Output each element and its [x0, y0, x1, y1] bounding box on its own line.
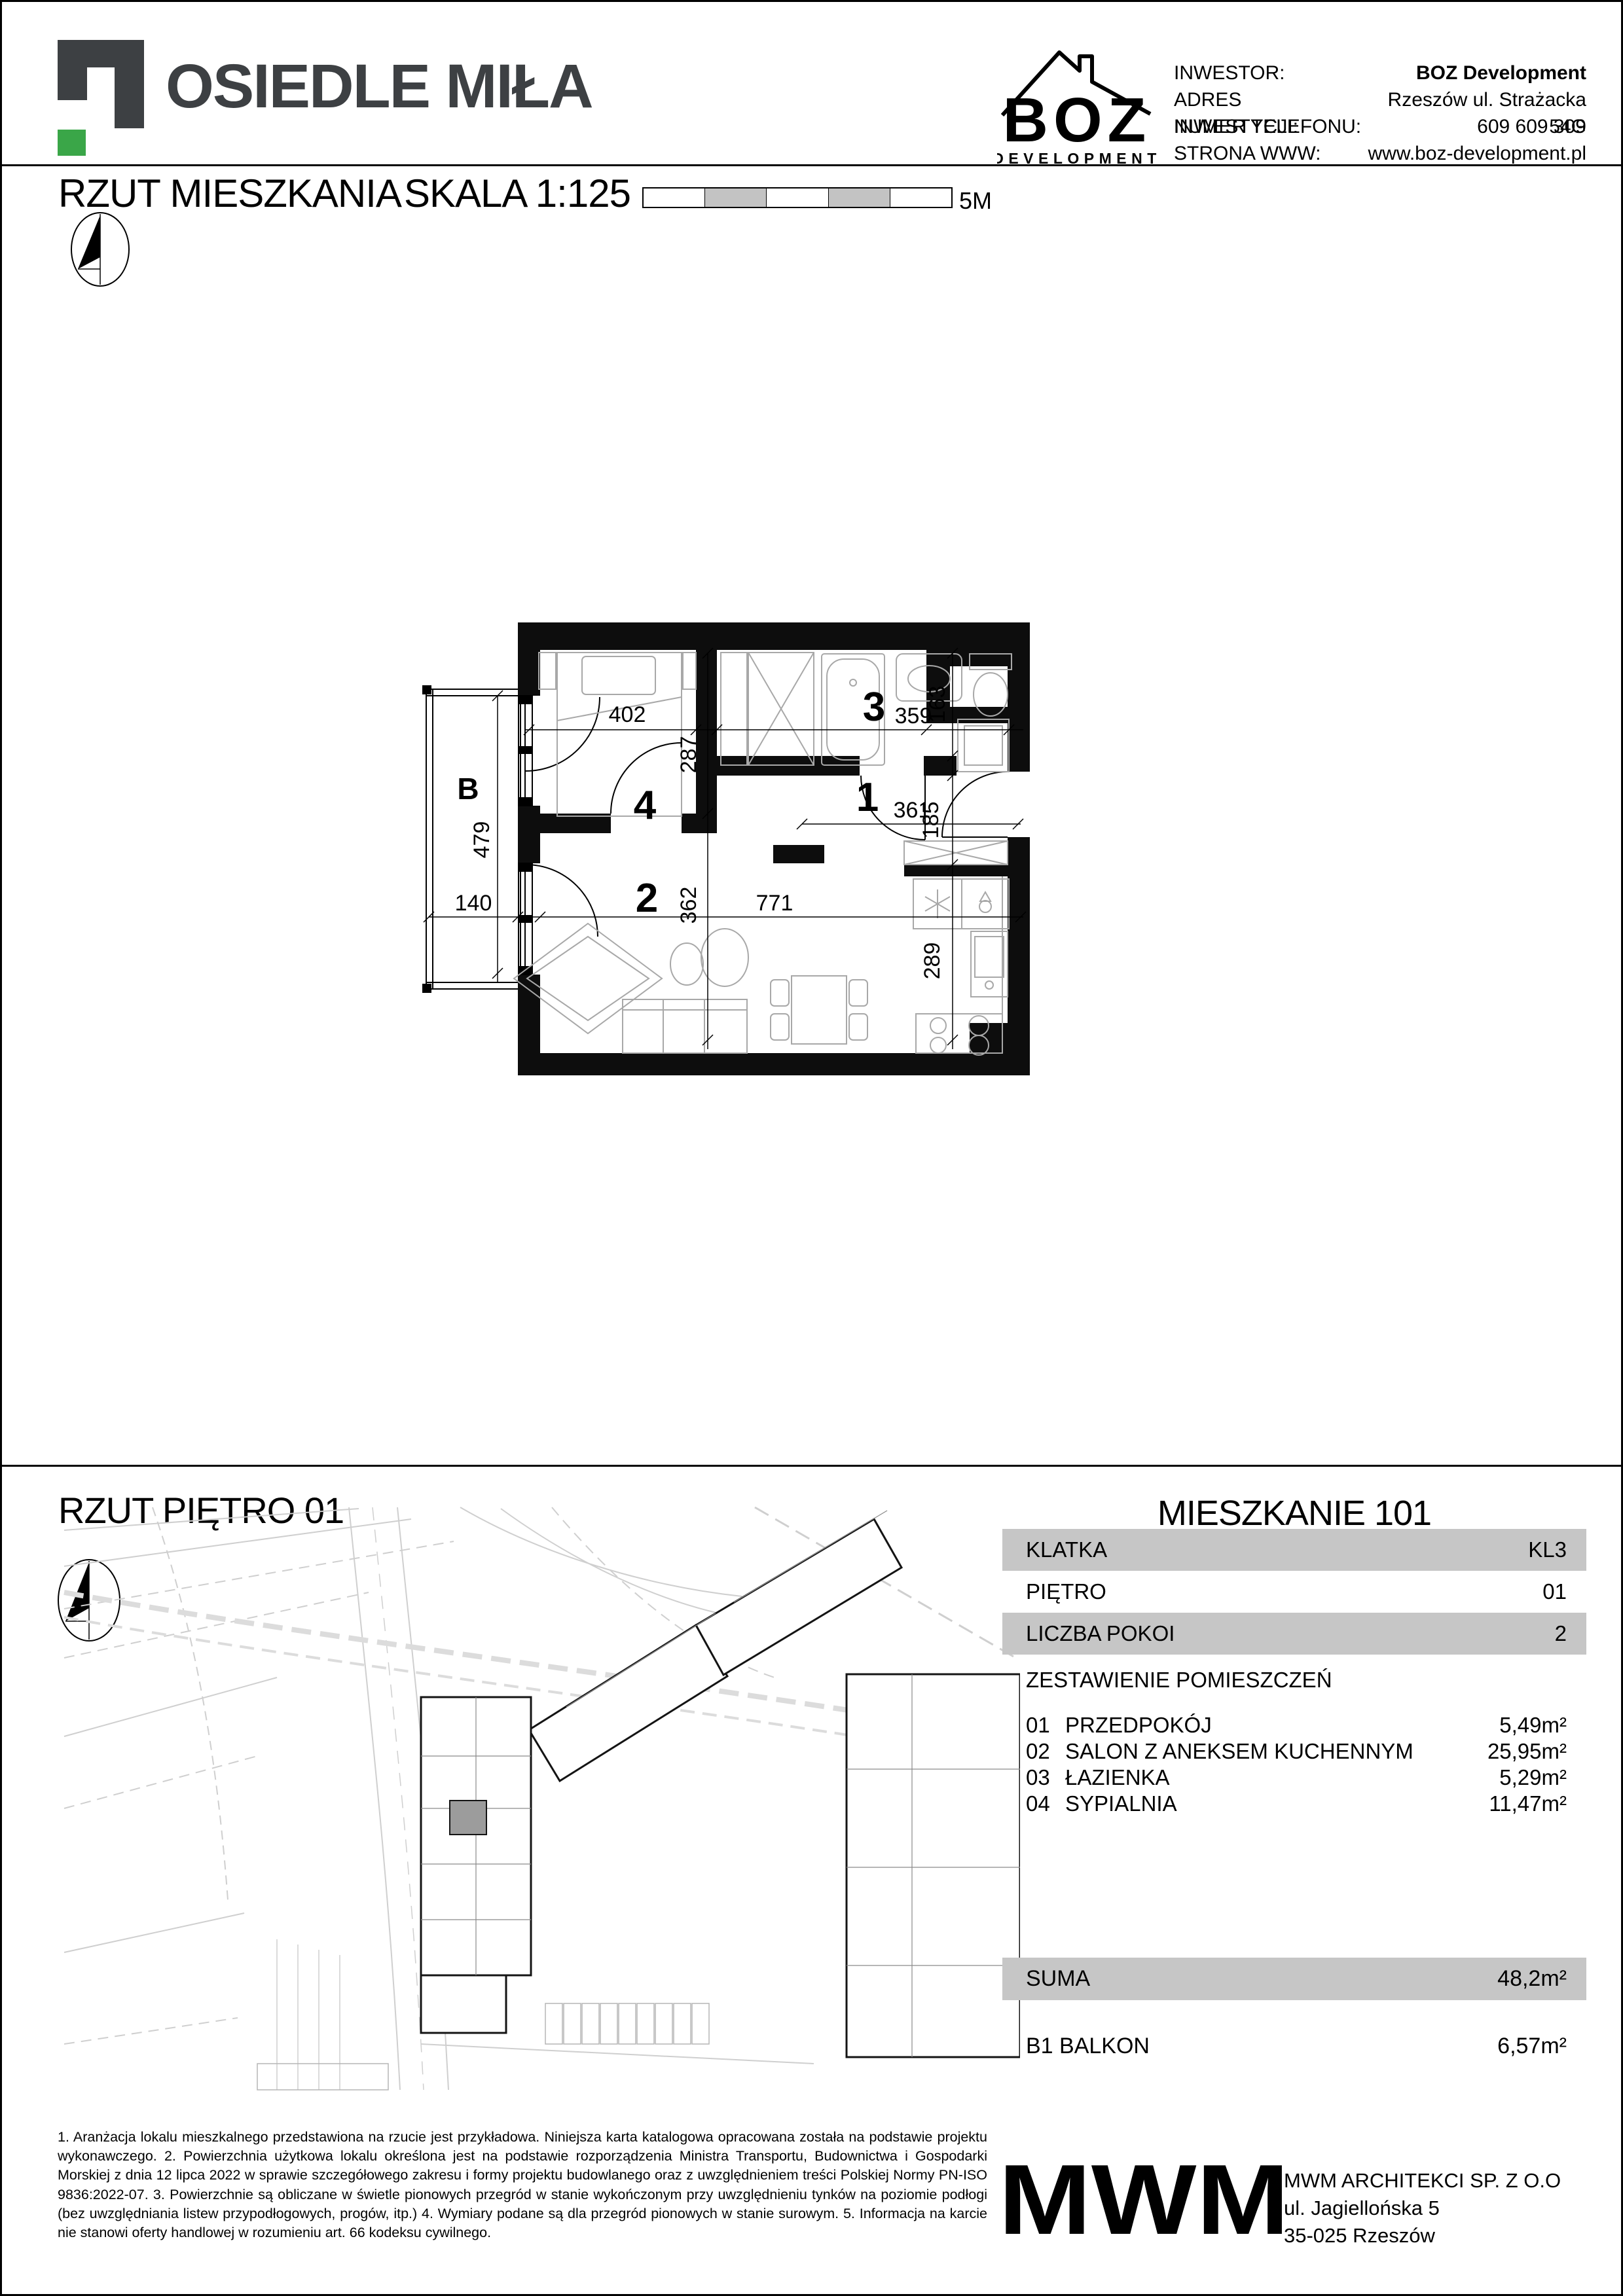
dim-living-width: 771: [756, 891, 793, 916]
dim-hall-width: 361: [894, 798, 931, 823]
scale-bar-segment: [766, 188, 828, 207]
room-name: SALON Z ANEKSEM KUCHENNYM: [1065, 1738, 1413, 1765]
attr-row-liczba-pokoi: LICZBA POKOI 2: [1002, 1613, 1586, 1655]
scale-bar-segment: [890, 188, 951, 207]
dim-bedroom-depth: 287: [676, 736, 701, 774]
graphic-scale-bar: [642, 187, 953, 208]
room-row: 04 SYPIALNIA 11,47m²: [1002, 1791, 1586, 1817]
scale-label: SKALA 1:125: [404, 171, 630, 216]
room-area: 5,29m²: [1499, 1765, 1567, 1791]
room-name: PRZEDPOKÓJ: [1065, 1712, 1212, 1738]
dim-kitchen-depth: 289: [920, 942, 945, 980]
contact-row: INWESTOR: BOZ Development: [1174, 60, 1586, 86]
osiedle-mila-logo-icon: [58, 40, 146, 158]
scale-bar-segment: [704, 188, 766, 207]
contact-label: NUMER TELEFONU:: [1174, 113, 1361, 140]
mwm-architects-logo: MWM: [998, 2150, 1289, 2250]
room-number: 04: [1026, 1791, 1050, 1817]
room-area: 25,95m²: [1487, 1738, 1567, 1765]
contact-value: BOZ Development: [1416, 60, 1586, 86]
contact-value: 609 609 309: [1477, 113, 1586, 140]
boz-logo-text: BOZ: [1003, 85, 1152, 155]
room-name: SYPIALNIA: [1065, 1791, 1177, 1817]
dim-bedroom-width: 402: [609, 702, 646, 727]
contact-label: INWESTOR:: [1174, 60, 1285, 86]
contact-row: ADRES INWESTYCJI: Rzeszów ul. Strażacka …: [1174, 86, 1586, 113]
balcony-label: B: [457, 772, 479, 806]
dim-balcony-depth: 479: [469, 821, 494, 859]
header-divider: [2, 164, 1623, 166]
plan-section-title: RZUT MIESZKANIA: [58, 171, 401, 216]
room-row: 03 ŁAZIENKA 5,29m²: [1002, 1765, 1586, 1791]
attr-value: KL3: [1528, 1529, 1567, 1571]
total-label: SUMA: [1026, 1958, 1090, 2000]
architect-city: 35-025 Rzeszów: [1284, 2222, 1561, 2250]
room-number: 01: [1026, 1712, 1050, 1738]
room-number: 02: [1026, 1738, 1050, 1765]
room-label-living: 2: [636, 876, 658, 921]
attr-row-klatka: KLATKA KL3: [1002, 1529, 1586, 1571]
site-plan-map: [51, 1501, 1020, 2093]
attr-value: 2: [1555, 1613, 1567, 1655]
architect-address-block: MWM ARCHITEKCI SP. Z O.O ul. Jagiellońsk…: [1284, 2167, 1561, 2250]
room-number: 03: [1026, 1765, 1050, 1791]
contact-value: www.boz-development.pl: [1368, 140, 1586, 167]
room-area: 11,47m²: [1489, 1791, 1567, 1817]
room-label-hall: 1: [856, 775, 879, 820]
balcony-area-label: B1 BALKON: [1026, 2030, 1150, 2062]
room-label-bedroom: 4: [634, 783, 657, 828]
room-name: ŁAZIENKA: [1065, 1765, 1170, 1791]
contact-label: STRONA WWW:: [1174, 140, 1321, 167]
legal-notes: 1. Aranżacja lokalu mieszkalnego przedst…: [58, 2128, 987, 2242]
rooms-list-header: ZESTAWIENIE POMIESZCZEŃ: [1026, 1668, 1332, 1693]
dim-living-depth: 362: [676, 887, 701, 924]
scale-bar-segment: [828, 188, 890, 207]
scale-bar-max-label: 5M: [959, 187, 992, 215]
architect-company: MWM ARCHITEKCI SP. Z O.O: [1284, 2167, 1561, 2195]
balcony-area-row: B1 BALKON 6,57m²: [1002, 2030, 1586, 2062]
contact-row: NUMER TELEFONU: 609 609 309: [1174, 113, 1586, 140]
room-label-bath: 3: [863, 685, 885, 730]
highlighted-apartment-unit: [450, 1801, 486, 1835]
boz-development-logo-icon: BOZ DEVELOPMENT: [997, 38, 1158, 169]
contact-row: STRONA WWW: www.boz-development.pl: [1174, 140, 1586, 167]
attr-label: KLATKA: [1026, 1529, 1107, 1571]
apartment-floor-plan: 402 359 163 287 185 361 362 771 289 479 …: [408, 604, 1036, 1082]
section-divider: [2, 1465, 1623, 1467]
attr-value: 01: [1542, 1571, 1567, 1613]
map-buildings: [421, 1519, 1020, 2057]
room-row: 02 SALON Z ANEKSEM KUCHENNYM 25,95m²: [1002, 1738, 1586, 1765]
dim-bath-depth: 163: [925, 686, 950, 723]
scale-bar-segment: [644, 188, 704, 207]
total-area-row: SUMA 48,2m²: [1002, 1958, 1586, 2000]
architect-street: ul. Jagiellońska 5: [1284, 2195, 1561, 2222]
room-area: 5,49m²: [1499, 1712, 1567, 1738]
developer-contact-block: INWESTOR: BOZ Development ADRES INWESTYC…: [1174, 60, 1586, 167]
contact-label: ADRES INWESTYCJI:: [1174, 86, 1360, 113]
room-row: 01 PRZEDPOKÓJ 5,49m²: [1002, 1712, 1586, 1738]
catalog-card-page: OSIEDLE MIŁA BOZ DEVELOPMENT INWESTOR: B…: [0, 0, 1623, 2296]
north-arrow-icon: [70, 211, 130, 287]
contact-value: Rzeszów ul. Strażacka 54G: [1360, 86, 1586, 113]
attr-row-pietro: PIĘTRO 01: [1002, 1571, 1586, 1613]
balcony-area-value: 6,57m²: [1497, 2030, 1567, 2062]
attr-label: PIĘTRO: [1026, 1571, 1106, 1613]
dim-balcony-width: 140: [455, 891, 492, 916]
apartment-title: MIESZKANIE 101: [1002, 1493, 1586, 1534]
project-title: OSIEDLE MIŁA: [166, 51, 593, 122]
total-value: 48,2m²: [1497, 1958, 1567, 2000]
attr-label: LICZBA POKOI: [1026, 1613, 1175, 1655]
